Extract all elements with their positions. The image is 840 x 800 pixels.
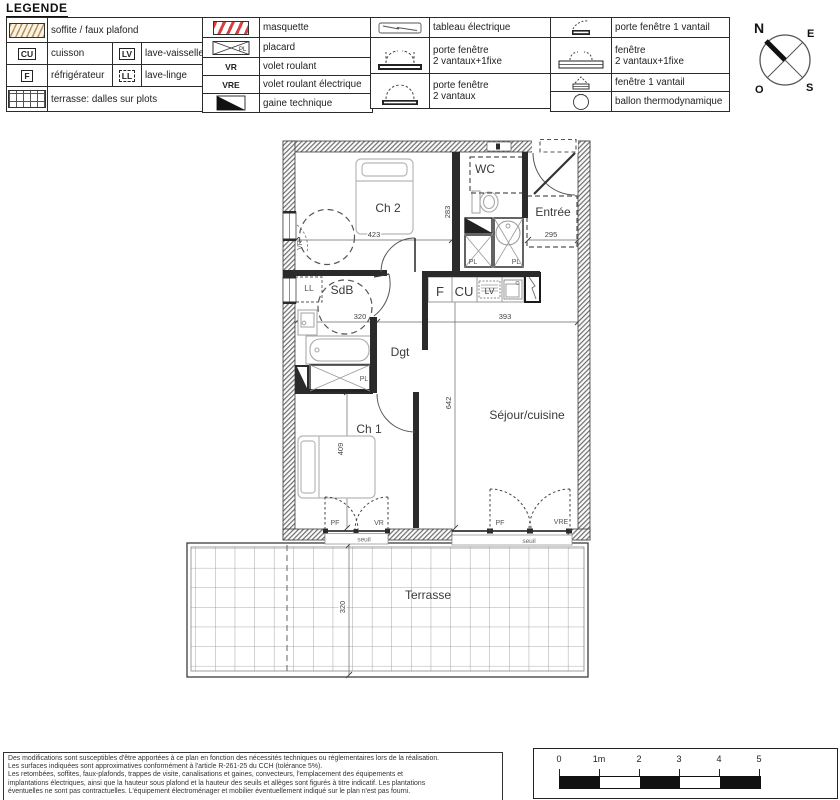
room-label-sejour: Séjour/cuisine [489, 408, 565, 422]
legend-group-2: masquette PL placard VR volet roulant VR… [202, 17, 373, 113]
legend-group-3: tableau électrique porte fenêtre 2 vanta… [370, 17, 553, 109]
pf-2v-swatch [371, 74, 429, 108]
legend-label-placard: placard [260, 38, 372, 57]
scale-bar-segments [559, 776, 761, 789]
room-label-wc: WC [475, 162, 495, 176]
pf-2v1f-line1: porte fenêtre [433, 45, 489, 56]
tableau-swatch [371, 18, 429, 37]
legend-label-ballon: ballon thermodynamique [612, 92, 729, 111]
legend-title: LEGENDE [6, 1, 68, 18]
tag-seuil-sejour: seuil [522, 538, 536, 545]
dim-entree-width: 295 [545, 230, 558, 239]
dim-ch2-width: 423 [368, 230, 381, 239]
dim-sdb-width: 320 [354, 312, 367, 321]
legend-group-4: porte fenêtre 1 vantail fenêtre 2 vantau… [550, 17, 730, 112]
compass-o-label: O [755, 84, 764, 96]
gaine-technique-icon [216, 95, 246, 111]
legend-label-refrigerateur: réfrigérateur [48, 65, 112, 86]
placard-pl-label: PL [239, 47, 247, 53]
duct-wc [465, 218, 492, 233]
vr-key: VR [203, 58, 259, 75]
legend-label-gaine: gaine technique [260, 94, 372, 112]
masquette-swatch [203, 18, 259, 37]
soffite-hatch-icon [9, 23, 45, 38]
tag-vre-sejour: VRE [554, 519, 569, 526]
legend-label-terrasse: terrasse: dalles sur plots [48, 87, 203, 111]
toilet [472, 191, 498, 213]
entrance-opening [532, 139, 578, 153]
porte-fenetre-1v-icon [564, 19, 598, 36]
fen-2v1f-line2: 2 vantaux+1fixe [615, 56, 684, 67]
masquette-hatch-icon [213, 21, 249, 35]
placard-swatch: PL [203, 38, 259, 57]
scale-label-1m: 1m [587, 754, 611, 764]
refrigerateur-key: F [7, 65, 47, 86]
compass-rose: N E O S [740, 8, 830, 100]
disclaimer-line-3: Les retombées, soffites, faux-plafonds, … [8, 771, 498, 779]
disclaimer-line-1: Des modifications sont susceptibles d'êt… [8, 755, 498, 763]
scale-segment [600, 777, 640, 788]
fen-2v1f-line1: fenêtre [615, 45, 646, 56]
dim-sejour-width: 393 [499, 312, 512, 321]
dim-terrasse-depth: 320 [338, 601, 347, 614]
scale-tick [559, 769, 560, 776]
ll-icon: LL [119, 70, 135, 82]
room-label-entree: Entrée [535, 205, 571, 219]
fenetre-2v1f-icon [556, 41, 606, 71]
scale-label-3: 3 [667, 754, 691, 764]
legend-label-masquette: masquette [260, 18, 372, 37]
room-label-ch2: Ch 2 [375, 201, 401, 215]
porte-fenetre-2v1f-icon [375, 40, 425, 72]
legend-label-lave-vaisselle: lave-vaisselle [142, 43, 203, 64]
bathroom-sink [298, 310, 317, 335]
cu-icon: CU [18, 48, 36, 60]
gaine-swatch [203, 94, 259, 112]
ballon-swatch [551, 92, 611, 111]
placard-icon: PL [212, 40, 250, 56]
scale-bar: 0 1m 2 3 4 5 [533, 748, 838, 799]
legend-group-1: soffite / faux plafond CU cuisson LV lav… [6, 17, 204, 112]
disclaimer-line-4: implantations électriques, ainsi que la … [8, 780, 498, 788]
legend-label-pf-2v1f: porte fenêtre 2 vantaux+1fixe [430, 38, 552, 73]
room-label-sdb: SdB [331, 283, 354, 297]
dim-ch1-height: 409 [336, 443, 345, 456]
lv-icon: LV [119, 48, 135, 60]
ch2-bed [356, 159, 413, 234]
dishwasher-label: LV [485, 286, 495, 296]
top-wall-vent [487, 142, 511, 151]
scale-tick [599, 769, 600, 776]
room-label-dgt: Dgt [391, 345, 410, 359]
compass-s-label: S [806, 82, 813, 94]
vre-text-icon: VRE [222, 80, 239, 90]
lave-vaisselle-key: LV [113, 43, 141, 64]
tableau-electrique-icon [377, 20, 423, 36]
duct-sdb [295, 365, 309, 391]
scale-label-4: 4 [707, 754, 731, 764]
legend-label-fen-2v1f: fenêtre 2 vantaux+1fixe [612, 38, 729, 73]
scale-tick [719, 769, 720, 776]
pf-2v-line1: porte fenêtre [433, 80, 489, 91]
scale-tick [679, 769, 680, 776]
soffite-swatch [7, 18, 47, 42]
legend-label-lave-linge: lave-linge [142, 65, 203, 86]
legend-label-pf-2v: porte fenêtre 2 vantaux [430, 74, 552, 108]
legend-label-volet-roulant: volet roulant [260, 58, 372, 75]
vr-text-icon: VR [225, 62, 237, 72]
lave-linge-key: LL [113, 65, 141, 86]
scale-tick [639, 769, 640, 776]
tag-vr-ch1: VR [374, 520, 384, 527]
compass-e-label: E [807, 28, 814, 40]
tag-seuil-ch1: seuil [357, 537, 371, 544]
fen-1v-swatch [551, 74, 611, 91]
legend-label-cuisson: cuisson [48, 43, 112, 64]
seuil-band-sejour [452, 535, 572, 545]
pf-2v1f-swatch [371, 38, 429, 73]
scale-segment [560, 777, 600, 788]
scale-segment [640, 777, 680, 788]
fenetre-1v-icon [566, 75, 596, 91]
disclaimer-line-2: Les surfaces indiquées sont approximativ… [8, 763, 498, 771]
tag-ll: LL [304, 283, 314, 293]
f-icon: F [21, 70, 32, 82]
dim-ch2-height: 283 [443, 206, 452, 219]
room-label-ch1: Ch 1 [356, 422, 382, 436]
fen-2v1f-swatch [551, 38, 611, 73]
floor-plan-page: LEGENDE soffite / faux plafond CU cuisso… [0, 0, 840, 800]
scale-label-0: 0 [547, 754, 571, 764]
tag-pf-sejour: PF [496, 520, 505, 527]
legend-label-fen-1v: fenêtre 1 vantail [612, 74, 729, 91]
bathtub [306, 336, 373, 364]
floor-plan: Ch 2 WC Entrée SdB Dgt Ch 1 Séjour/cuisi… [178, 132, 598, 690]
porte-fenetre-2v-icon [378, 75, 422, 107]
north-pointer-icon [766, 41, 785, 60]
terrace [187, 542, 588, 678]
disclaimer-line-5: éventuelles ne sont pas contractuelles. … [8, 788, 498, 796]
scale-segment [720, 777, 760, 788]
hob-label: CU [455, 284, 474, 299]
cuisson-key: CU [7, 43, 47, 64]
tag-pf-ch1: PF [331, 520, 340, 527]
pf-2v1f-line2: 2 vantaux+1fixe [433, 56, 502, 67]
tag-pl-1: PL [469, 259, 478, 266]
room-label-terrasse: Terrasse [405, 588, 451, 602]
ballon-thermodynamique-icon [569, 92, 593, 111]
dim-sejour-height: 642 [444, 397, 453, 410]
compass-n-label: N [754, 20, 764, 36]
legend-label-tableau: tableau électrique [430, 18, 552, 37]
scale-label-5: 5 [747, 754, 771, 764]
scale-tick [759, 769, 760, 776]
tag-pl-3: PL [360, 376, 369, 383]
tag-vr-ch2-window: VR [297, 240, 304, 250]
fridge-label: F [436, 284, 444, 299]
disclaimer-box: Des modifications sont susceptibles d'êt… [3, 752, 503, 800]
terrasse-swatch [7, 87, 47, 111]
pf-1v-swatch [551, 18, 611, 37]
tiles-grid-icon [8, 90, 46, 108]
scale-label-2: 2 [627, 754, 651, 764]
legend-label-soffite: soffite / faux plafond [48, 18, 203, 42]
scale-segment [680, 777, 720, 788]
tag-pl-2: PL [512, 259, 521, 266]
pf-2v-line2: 2 vantaux [433, 91, 475, 102]
vre-key: VRE [203, 76, 259, 93]
legend-label-pf-1v: porte fenêtre 1 vantail [612, 18, 729, 37]
legend-label-volet-roulant-electrique: volet roulant électrique [260, 76, 372, 93]
